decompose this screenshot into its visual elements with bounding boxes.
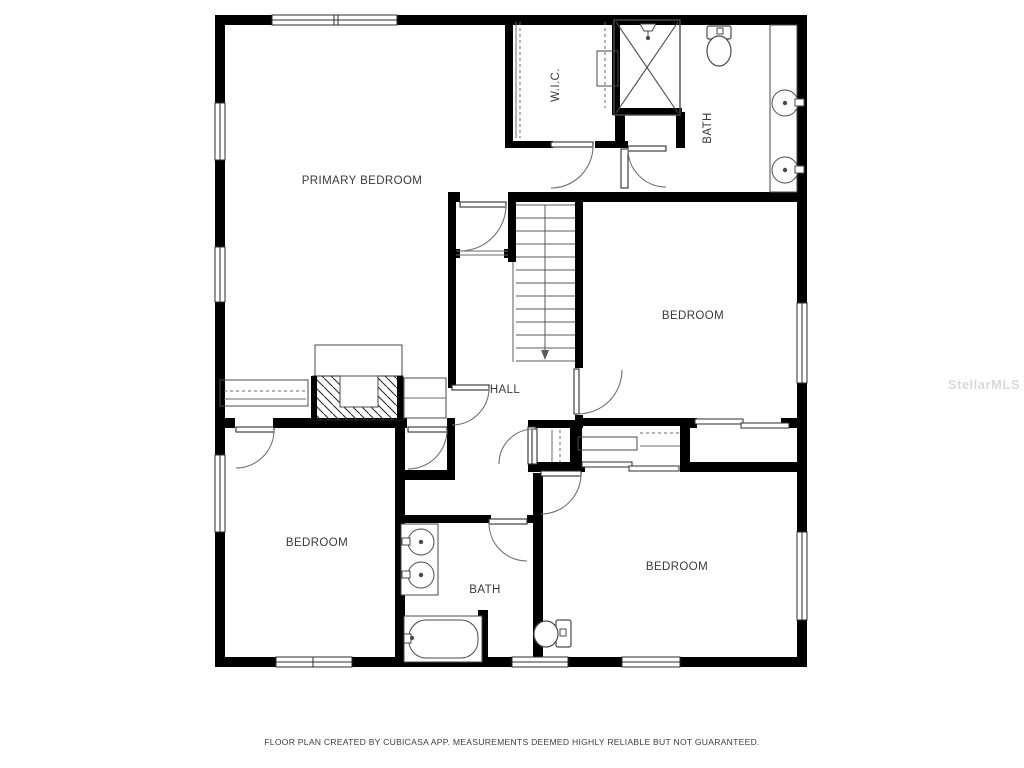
toilet-bottom [534, 620, 571, 647]
floor-plan-page: PRIMARY BEDROOM W.I.C. BATH BEDROOM HALL… [0, 0, 1024, 768]
room-label-bedroom-bottom-right: BEDROOM [646, 561, 708, 573]
door-bath-top [621, 146, 666, 188]
band-closet [220, 380, 308, 406]
door-bedroom-left [236, 427, 274, 468]
showerhead-icon [640, 24, 656, 40]
room-label-bath-bottom: BATH [469, 584, 500, 596]
shower [614, 20, 680, 115]
sink-drain [419, 540, 422, 543]
sliding-door-closet-bottom [582, 462, 632, 467]
room-label-bedroom-left: BEDROOM [286, 537, 348, 549]
room-label-hall: HALL [490, 384, 520, 396]
sink-drain [419, 573, 422, 576]
room-label-bath-top: BATH [702, 112, 714, 143]
stellar-mls-watermark: StellarMLS [948, 377, 1020, 392]
faucet-icon [402, 571, 410, 578]
tub-faucet-icon [404, 634, 411, 643]
fireplace [311, 345, 403, 420]
faucet-icon [795, 166, 804, 173]
sliding-door-closet-topright [695, 419, 743, 424]
sliding-door-closet-bottom [629, 466, 679, 471]
faucet-icon [402, 538, 410, 545]
walls [215, 15, 807, 667]
sliding-door-closet-topright [741, 423, 789, 428]
door-wic [551, 142, 593, 188]
cubicasa-disclaimer: FLOOR PLAN CREATED BY CUBICASA APP. MEAS… [0, 737, 1024, 747]
toilet-top [707, 26, 731, 66]
door-primary-entry [460, 202, 506, 251]
door-primary-hall [452, 385, 489, 425]
door-bedroom-right [574, 369, 622, 414]
faucet-icon [795, 99, 804, 106]
bathtub [404, 616, 482, 662]
vanity-bottom [401, 524, 438, 595]
room-label-primary-bedroom: PRIMARY BEDROOM [302, 175, 423, 187]
door-hall-alcove [408, 427, 447, 469]
room-label-bedroom-right: BEDROOM [662, 310, 724, 322]
door-bath-bottom [489, 519, 527, 561]
stairs-direction-arrow [541, 350, 549, 360]
door-bedroom-bottom-right [541, 471, 581, 514]
sink-drain [783, 101, 786, 104]
staircase-down [513, 205, 575, 362]
sink-drain [783, 168, 786, 171]
door-hall-closet [499, 427, 537, 464]
room-label-wic: W.I.C. [550, 68, 562, 102]
